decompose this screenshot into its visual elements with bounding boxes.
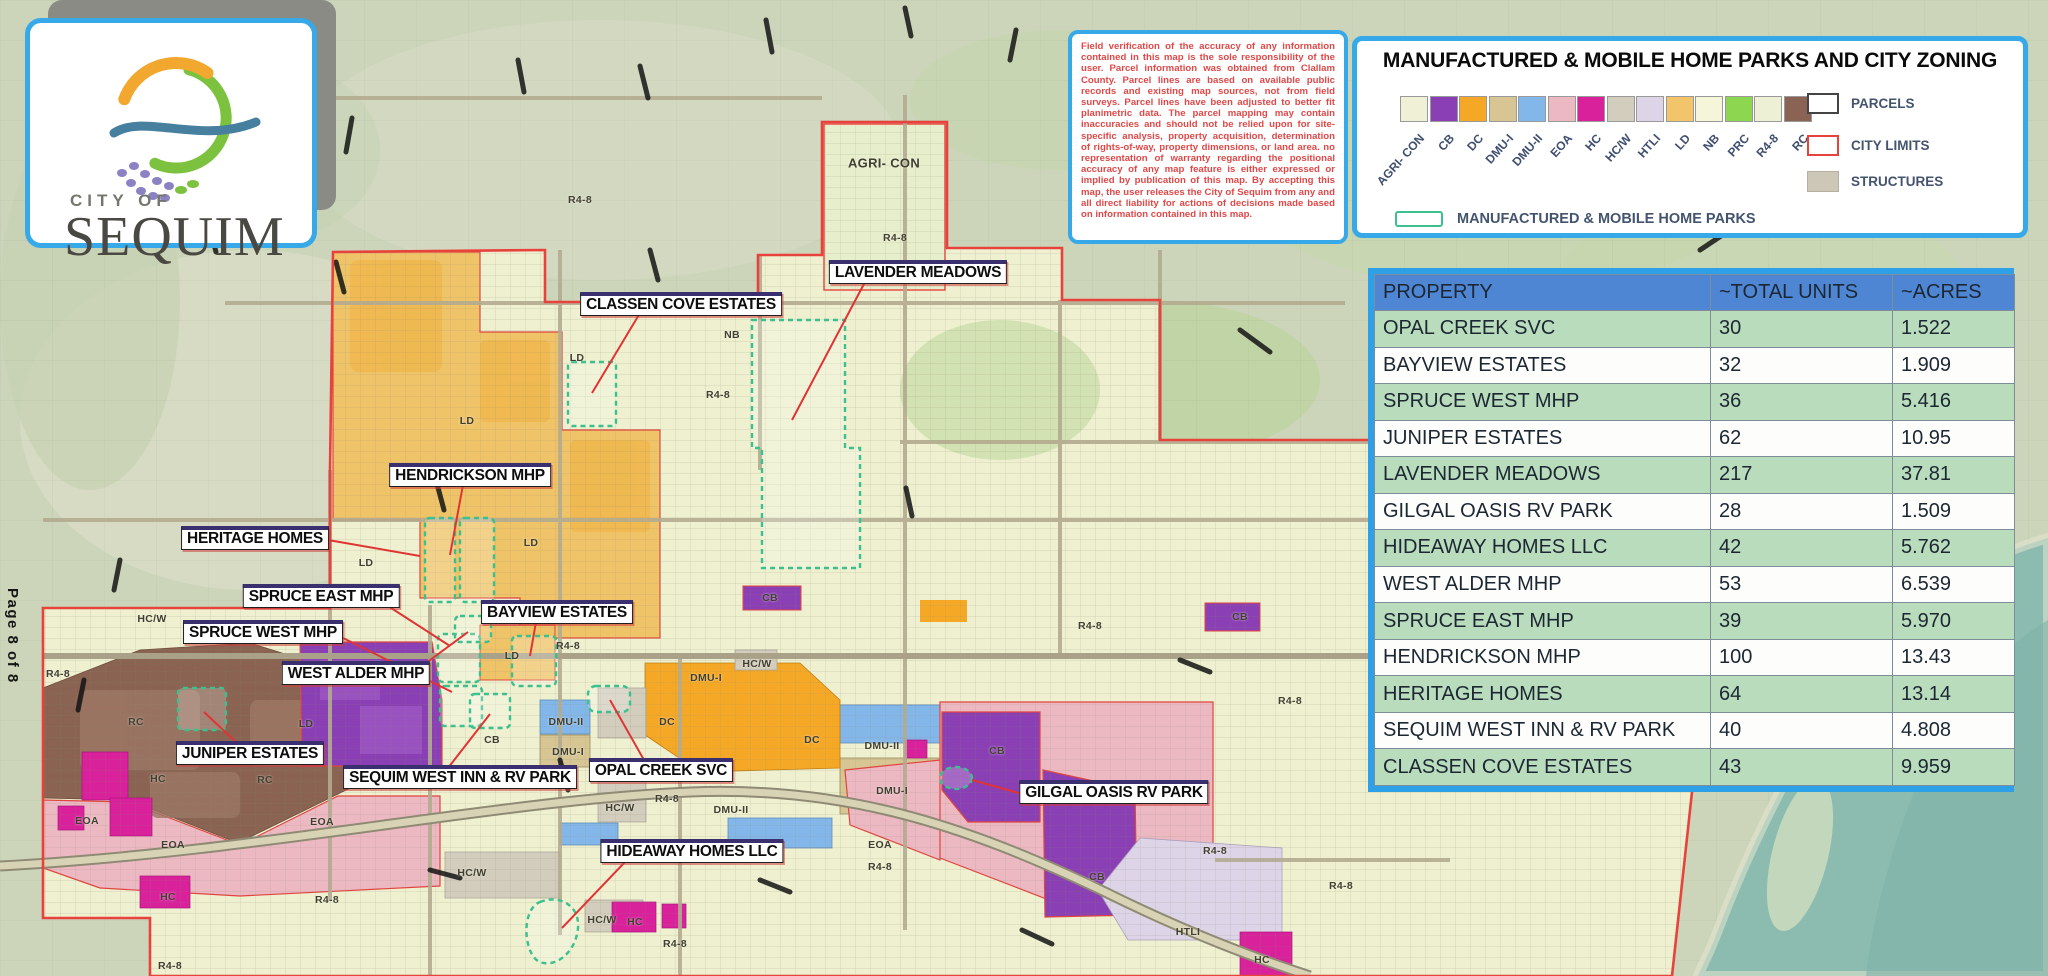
- zone-code-label: R4-8: [568, 194, 592, 206]
- zone-code-label: R4-8: [46, 668, 70, 680]
- table-row: SEQUIM WEST INN & RV PARK404.808: [1375, 712, 2015, 749]
- table-row: CLASSEN COVE ESTATES439.959: [1375, 749, 2015, 786]
- legend-zone-swatch: [1754, 96, 1782, 122]
- zone-code-label: DMU-I: [552, 746, 584, 758]
- zone-code-label: HC/W: [457, 867, 486, 879]
- table-row: HENDRICKSON MHP10013.43: [1375, 639, 2015, 676]
- zone-code-label: LD: [570, 352, 585, 364]
- park-label: SEQUIM WEST INN & RV PARK: [343, 765, 577, 789]
- table-row: OPAL CREEK SVC301.522: [1375, 311, 2015, 348]
- table-cell: SPRUCE WEST MHP: [1375, 384, 1711, 421]
- structures-swatch-icon: [1807, 171, 1839, 192]
- zone-code-label: DMU-I: [690, 672, 722, 684]
- table-cell: 53: [1711, 566, 1893, 603]
- park-label: HERITAGE HOMES: [181, 526, 329, 550]
- table-cell: 42: [1711, 530, 1893, 567]
- park-data-table: PROPERTY ~TOTAL UNITS ~ACRES OPAL CREEK …: [1368, 268, 2014, 792]
- legend-zone-swatch: [1400, 96, 1428, 122]
- legend-item-label: STRUCTURES: [1851, 174, 1943, 189]
- table-cell: 40: [1711, 712, 1893, 749]
- city-logo-card: CITY OF SEQUIM: [25, 18, 317, 248]
- zone-code-label: R4-8: [1278, 695, 1302, 707]
- table-cell: 39: [1711, 603, 1893, 640]
- table-row: SPRUCE WEST MHP365.416: [1375, 384, 2015, 421]
- logo-sequim-text: SEQUIM: [64, 205, 285, 269]
- table-cell: BAYVIEW ESTATES: [1375, 347, 1711, 384]
- legend-item-mhp: MANUFACTURED & MOBILE HOME PARKS: [1395, 211, 1756, 227]
- legend-item-city-limits: CITY LIMITS: [1807, 135, 1930, 156]
- zone-code-label: R4-8: [706, 389, 730, 401]
- zone-code-label: EOA: [75, 815, 99, 827]
- zone-code-label: HC/W: [137, 613, 166, 625]
- table-cell: HENDRICKSON MHP: [1375, 639, 1711, 676]
- table-cell: 6.539: [1893, 566, 2015, 603]
- col-header-property: PROPERTY: [1375, 275, 1711, 311]
- park-label: GILGAL OASIS RV PARK: [1019, 780, 1208, 804]
- table-row: WEST ALDER MHP536.539: [1375, 566, 2015, 603]
- table-cell: 36: [1711, 384, 1893, 421]
- table-cell: CLASSEN COVE ESTATES: [1375, 749, 1711, 786]
- zone-code-label: R4-8: [663, 938, 687, 950]
- table-row: HERITAGE HOMES6413.14: [1375, 676, 2015, 713]
- legend-item-label: MANUFACTURED & MOBILE HOME PARKS: [1457, 211, 1756, 227]
- park-label: HIDEAWAY HOMES LLC: [600, 839, 783, 863]
- park-label: LAVENDER MEADOWS: [829, 260, 1007, 284]
- zone-code-label: EOA: [161, 839, 185, 851]
- zone-code-label: CB: [1089, 871, 1105, 883]
- zone-code-label: EOA: [310, 816, 334, 828]
- zone-code-label: RC: [257, 774, 273, 786]
- zone-code-label: R4-8: [315, 894, 339, 906]
- park-label: BAYVIEW ESTATES: [481, 600, 633, 624]
- legend-zone-swatch: [1489, 96, 1517, 122]
- zone-code-label: R4-8: [1329, 880, 1353, 892]
- table-cell: SPRUCE EAST MHP: [1375, 603, 1711, 640]
- table-cell: 9.959: [1893, 749, 2015, 786]
- legend-panel: MANUFACTURED & MOBILE HOME PARKS AND CIT…: [1352, 36, 2028, 238]
- zone-code-label: R4-8: [868, 861, 892, 873]
- zone-code-label: HC: [150, 773, 166, 785]
- zone-code-label: R4-8: [655, 793, 679, 805]
- table-cell: 62: [1711, 420, 1893, 457]
- zone-code-label: CB: [762, 592, 778, 604]
- mhp-outline-swatch-icon: [1395, 211, 1443, 227]
- zone-code-label: HTLI: [1176, 926, 1201, 938]
- legend-zone-swatch: [1548, 96, 1576, 122]
- legend-zone-swatch: [1577, 96, 1605, 122]
- table-row: JUNIPER ESTATES6210.95: [1375, 420, 2015, 457]
- table-cell: 30: [1711, 311, 1893, 348]
- table-row: GILGAL OASIS RV PARK281.509: [1375, 493, 2015, 530]
- zone-code-label: LD: [299, 718, 314, 730]
- table-row: LAVENDER MEADOWS21737.81: [1375, 457, 2015, 494]
- legend-item-structures: STRUCTURES: [1807, 171, 1943, 192]
- zone-code-label: DMU-II: [864, 740, 899, 752]
- zone-code-label: NB: [724, 329, 740, 341]
- table-cell: JUNIPER ESTATES: [1375, 420, 1711, 457]
- zone-code-label: R4-8: [158, 960, 182, 972]
- col-header-total-units: ~TOTAL UNITS: [1711, 275, 1893, 311]
- legend-item-label: CITY LIMITS: [1851, 138, 1930, 153]
- legend-zone-swatch: [1725, 96, 1753, 122]
- zone-code-label: CB: [989, 745, 1005, 757]
- table-cell: 37.81: [1893, 457, 2015, 494]
- table-cell: WEST ALDER MHP: [1375, 566, 1711, 603]
- zone-code-label: HC/W: [742, 658, 771, 670]
- zone-code-label: RC: [128, 716, 144, 728]
- disclaimer-box: Field verification of the accuracy of an…: [1068, 30, 1348, 244]
- zone-code-label: HC: [1254, 954, 1270, 966]
- zone-code-label: DMU-I: [876, 785, 908, 797]
- zoning-map-page: CLASSEN COVE ESTATESLAVENDER MEADOWSHEND…: [0, 0, 2048, 976]
- zone-code-label: R4-8: [1078, 620, 1102, 632]
- table-cell: 43: [1711, 749, 1893, 786]
- zone-code-label: DMU-II: [548, 716, 583, 728]
- legend-title: MANUFACTURED & MOBILE HOME PARKS AND CIT…: [1357, 49, 2023, 73]
- legend-zone-swatch: [1430, 96, 1458, 122]
- zone-code-label: CB: [1232, 611, 1248, 623]
- table-cell: HERITAGE HOMES: [1375, 676, 1711, 713]
- zone-code-label: HC/W: [587, 914, 616, 926]
- legend-zone-swatch: [1607, 96, 1635, 122]
- legend-zone-swatch: [1459, 96, 1487, 122]
- park-label: CLASSEN COVE ESTATES: [580, 292, 782, 316]
- zone-code-label: LD: [359, 557, 374, 569]
- zone-code-label: DC: [804, 734, 820, 746]
- table-cell: SEQUIM WEST INN & RV PARK: [1375, 712, 1711, 749]
- zone-code-label: HC: [160, 891, 176, 903]
- park-label: JUNIPER ESTATES: [176, 741, 324, 765]
- table-row: BAYVIEW ESTATES321.909: [1375, 347, 2015, 384]
- park-label: OPAL CREEK SVC: [589, 758, 733, 782]
- table-cell: OPAL CREEK SVC: [1375, 311, 1711, 348]
- park-label: SPRUCE WEST MHP: [183, 620, 343, 644]
- col-header-acres: ~ACRES: [1893, 275, 2015, 311]
- zone-code-label: CB: [484, 734, 500, 746]
- table-cell: 32: [1711, 347, 1893, 384]
- table-cell: LAVENDER MEADOWS: [1375, 457, 1711, 494]
- zone-code-label: DC: [659, 716, 675, 728]
- park-label: HENDRICKSON MHP: [389, 463, 551, 487]
- table-row: SPRUCE EAST MHP395.970: [1375, 603, 2015, 640]
- zone-code-label: R4-8: [1203, 845, 1227, 857]
- legend-item-label: PARCELS: [1851, 96, 1915, 111]
- table-cell: 1.909: [1893, 347, 2015, 384]
- legend-zone-swatch: [1518, 96, 1546, 122]
- legend-item-parcels: PARCELS: [1807, 93, 1915, 114]
- table-cell: 217: [1711, 457, 1893, 494]
- table-cell: 13.14: [1893, 676, 2015, 713]
- table-cell: 5.762: [1893, 530, 2015, 567]
- zone-code-label: R4-8: [556, 640, 580, 652]
- legend-zone-swatch: [1695, 96, 1723, 122]
- table-header-row: PROPERTY ~TOTAL UNITS ~ACRES: [1375, 275, 2015, 311]
- zone-code-label: DMU-II: [713, 804, 748, 816]
- table-cell: 4.808: [1893, 712, 2015, 749]
- table-cell: 5.416: [1893, 384, 2015, 421]
- table-row: HIDEAWAY HOMES LLC425.762: [1375, 530, 2015, 567]
- table-cell: 64: [1711, 676, 1893, 713]
- zone-code-label: R4-8: [883, 232, 907, 244]
- table-cell: 10.95: [1893, 420, 2015, 457]
- table-cell: 1.509: [1893, 493, 2015, 530]
- table-cell: 100: [1711, 639, 1893, 676]
- zone-code-label: LD: [524, 537, 539, 549]
- park-label: WEST ALDER MHP: [282, 661, 430, 685]
- parcels-swatch-icon: [1807, 93, 1839, 114]
- legend-zone-swatch: [1636, 96, 1664, 122]
- zone-code-label: HC/W: [605, 802, 634, 814]
- zone-code-label: HC: [627, 916, 643, 928]
- city-limits-swatch-icon: [1807, 135, 1839, 156]
- table-cell: HIDEAWAY HOMES LLC: [1375, 530, 1711, 567]
- table-cell: 1.522: [1893, 311, 2015, 348]
- zone-code-label: LD: [505, 650, 520, 662]
- table-cell: 5.970: [1893, 603, 2015, 640]
- legend-zone-swatch: [1666, 96, 1694, 122]
- zone-code-label: AGRI- CON: [848, 156, 920, 171]
- zone-code-label: EOA: [868, 839, 892, 851]
- park-label: SPRUCE EAST MHP: [243, 584, 400, 608]
- page-number-label: Page 8 of 8: [4, 588, 21, 684]
- table-cell: 13.43: [1893, 639, 2015, 676]
- zone-code-label: LD: [460, 415, 475, 427]
- table-cell: GILGAL OASIS RV PARK: [1375, 493, 1711, 530]
- table-cell: 28: [1711, 493, 1893, 530]
